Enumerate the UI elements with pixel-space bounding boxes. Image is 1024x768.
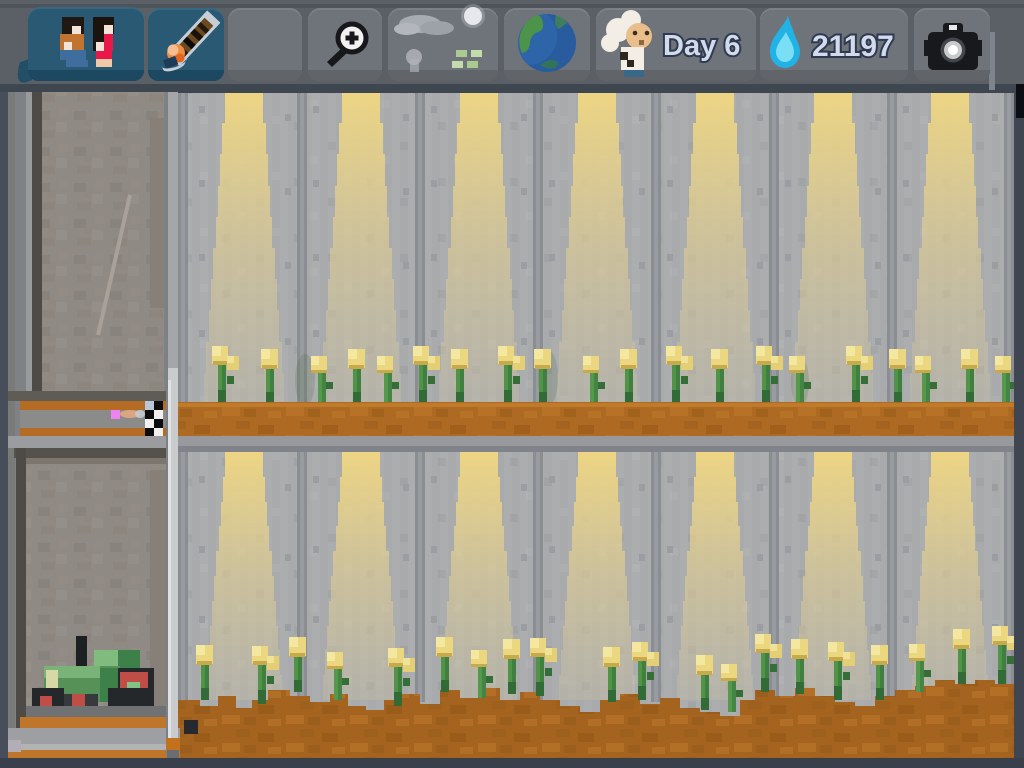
svg-text:Day 6: Day 6 <box>663 30 740 62</box>
svg-text:21197: 21197 <box>812 30 894 63</box>
